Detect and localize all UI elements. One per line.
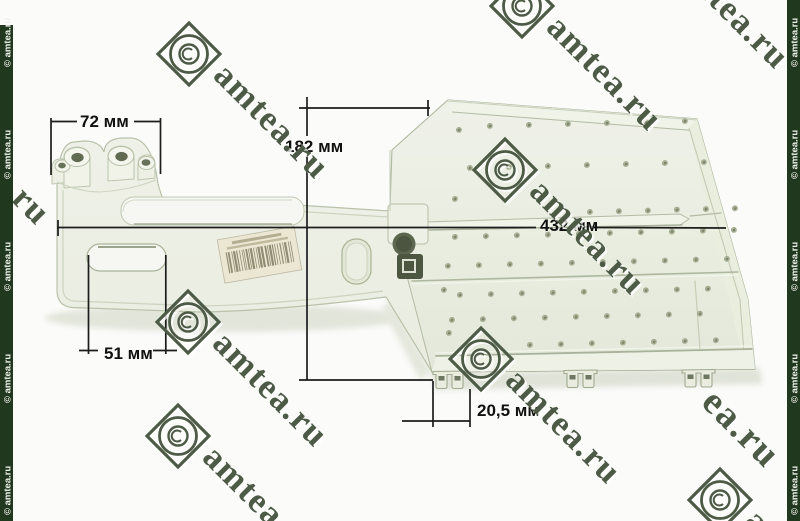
svg-text:© amtea.ru: © amtea.ru bbox=[790, 466, 800, 515]
svg-text:© amtea.ru: © amtea.ru bbox=[3, 466, 14, 515]
svg-text:© amtea.ru: © amtea.ru bbox=[790, 18, 800, 67]
svg-text:© amtea.ru: © amtea.ru bbox=[3, 242, 14, 291]
svg-text:© amtea.ru: © amtea.ru bbox=[3, 130, 14, 179]
svg-text:© amtea.ru: © amtea.ru bbox=[3, 18, 14, 67]
svg-text:© amtea.ru: © amtea.ru bbox=[790, 242, 800, 291]
svg-text:© amtea.ru: © amtea.ru bbox=[790, 130, 800, 179]
svg-text:51 мм: 51 мм bbox=[104, 344, 153, 363]
svg-text:© amtea.ru: © amtea.ru bbox=[3, 354, 14, 403]
svg-text:© amtea.ru: © amtea.ru bbox=[790, 354, 800, 403]
svg-text:72 мм: 72 мм bbox=[80, 112, 129, 131]
